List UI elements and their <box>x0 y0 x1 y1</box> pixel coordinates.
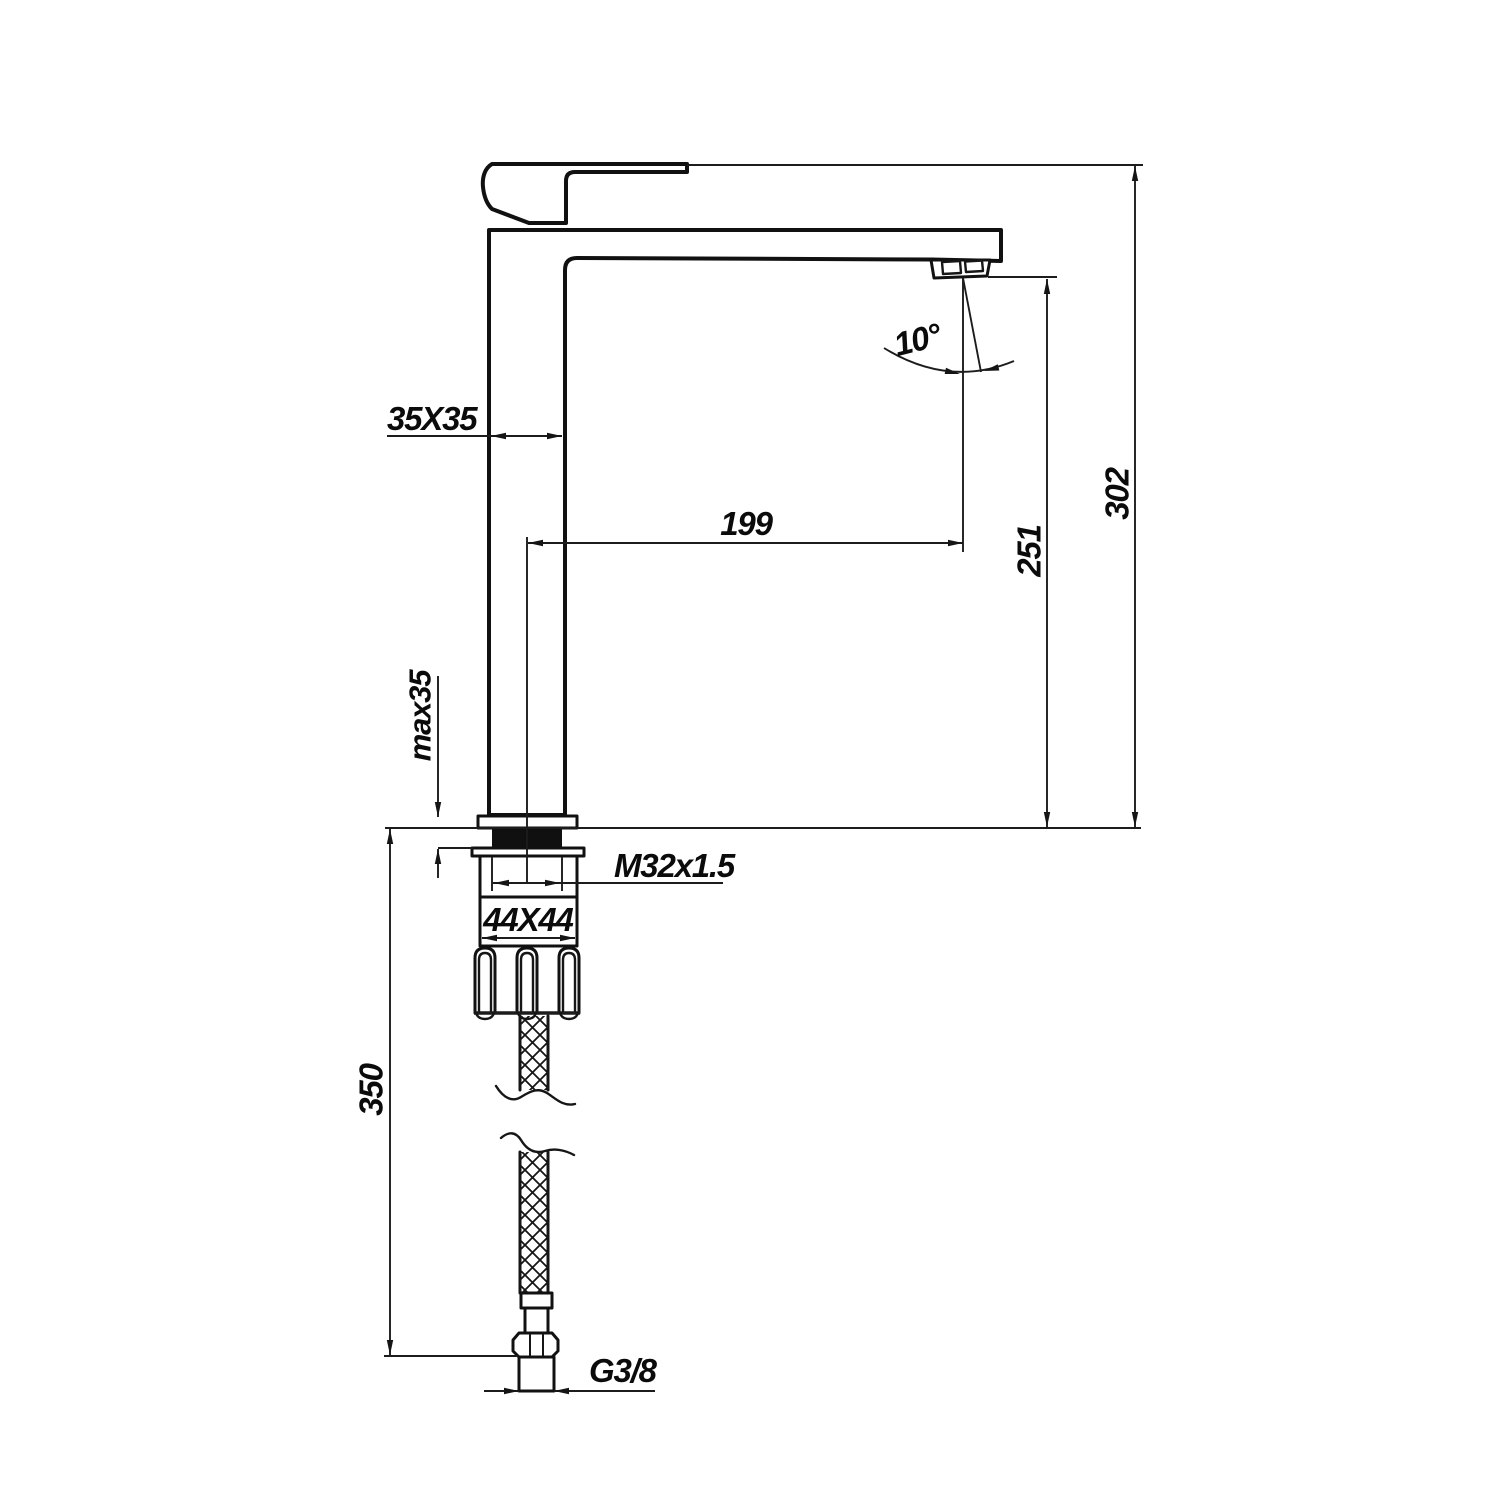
label-outlet-height: 251 <box>1011 525 1048 577</box>
technical-drawing-canvas: 35X35 199 10° 251 302 max35 M32x1.5 44X4… <box>0 0 1500 1500</box>
arrow-302-top <box>1132 166 1138 181</box>
arrow-251-bottom <box>1044 812 1050 827</box>
hex-nut <box>513 1333 558 1357</box>
arrow-max35-top <box>435 802 441 817</box>
supply-hose <box>496 1016 575 1391</box>
arrow-199-right <box>948 540 963 546</box>
faucet-dimension-drawing: 35X35 199 10° 251 302 max35 M32x1.5 44X4… <box>0 0 1500 1500</box>
dimension-annotations: 35X35 199 10° 251 302 max35 M32x1.5 44X4… <box>353 165 1144 1394</box>
hose-ferrule <box>521 1293 552 1308</box>
label-spout-reach: 199 <box>720 505 773 542</box>
label-spout-angle: 10° <box>890 315 946 363</box>
label-mounting-thread: M32x1.5 <box>614 847 736 884</box>
hose-break-wave-bottom <box>501 1133 574 1155</box>
mounting-studs <box>474 948 580 1019</box>
arrow-302-bottom <box>1132 812 1138 827</box>
label-body-section: 35X35 <box>387 400 478 437</box>
label-hose-thread: G3/8 <box>589 1352 658 1389</box>
spout-angle-line <box>963 278 981 372</box>
hose-neck <box>525 1308 548 1333</box>
arrow-g38-left <box>504 1388 519 1394</box>
label-base-section: 44X44 <box>482 901 573 938</box>
hose-braid-lower <box>520 1152 548 1293</box>
handle-lever <box>483 164 687 223</box>
arrow-350-top <box>387 829 393 844</box>
arrow-251-top <box>1044 279 1050 294</box>
connector-pipe-g38 <box>519 1357 554 1391</box>
arrow-g38-right <box>554 1388 569 1394</box>
arrow-max35-bottom <box>435 849 441 864</box>
arrow-350-bottom <box>387 1340 393 1355</box>
label-hose-length: 350 <box>353 1062 390 1115</box>
hose-braid-upper <box>520 1016 548 1090</box>
label-total-height: 302 <box>1099 466 1136 519</box>
label-max-deck-thickness: max35 <box>403 669 438 761</box>
